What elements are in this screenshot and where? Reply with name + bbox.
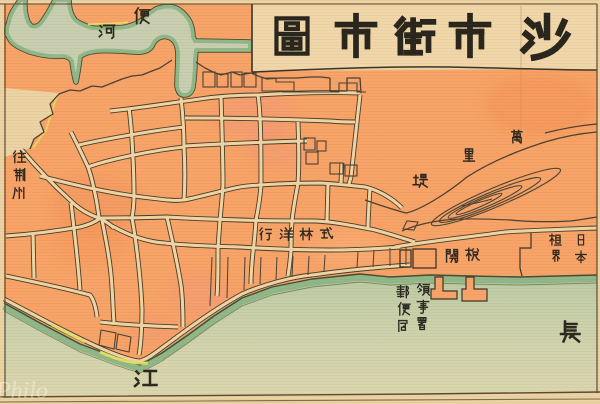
svg-text:Philo: Philo: [0, 378, 48, 404]
